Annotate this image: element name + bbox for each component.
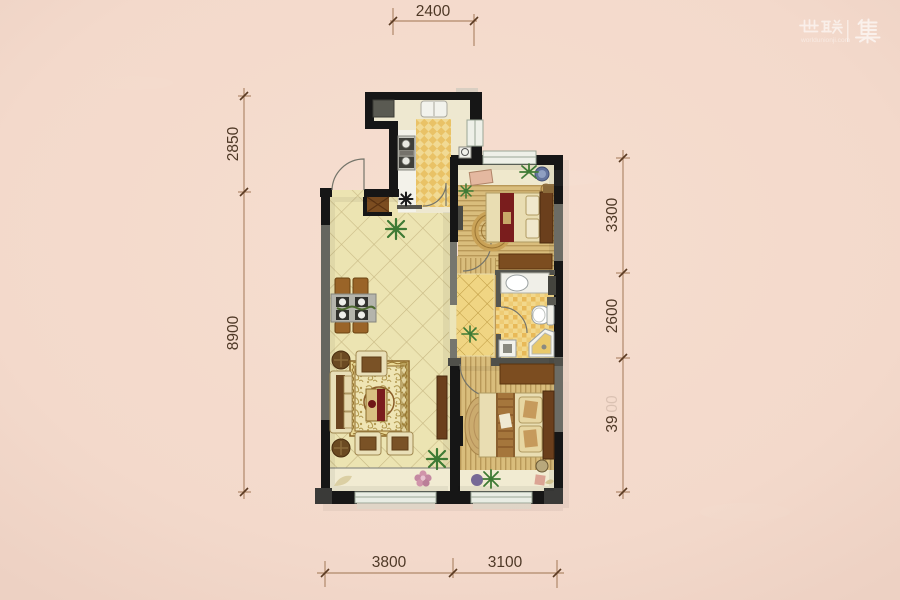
svg-text:39: 39 bbox=[604, 415, 621, 432]
svg-text:worldunionji.com: worldunionji.com bbox=[800, 37, 851, 44]
svg-text:2850: 2850 bbox=[225, 126, 242, 161]
svg-text:00: 00 bbox=[604, 395, 621, 413]
svg-text:2400: 2400 bbox=[416, 3, 451, 20]
svg-text:3100: 3100 bbox=[488, 554, 523, 571]
svg-text:3800: 3800 bbox=[372, 554, 407, 571]
svg-text:3300: 3300 bbox=[604, 197, 621, 232]
svg-text:8900: 8900 bbox=[225, 315, 242, 350]
svg-text:2600: 2600 bbox=[604, 298, 621, 333]
